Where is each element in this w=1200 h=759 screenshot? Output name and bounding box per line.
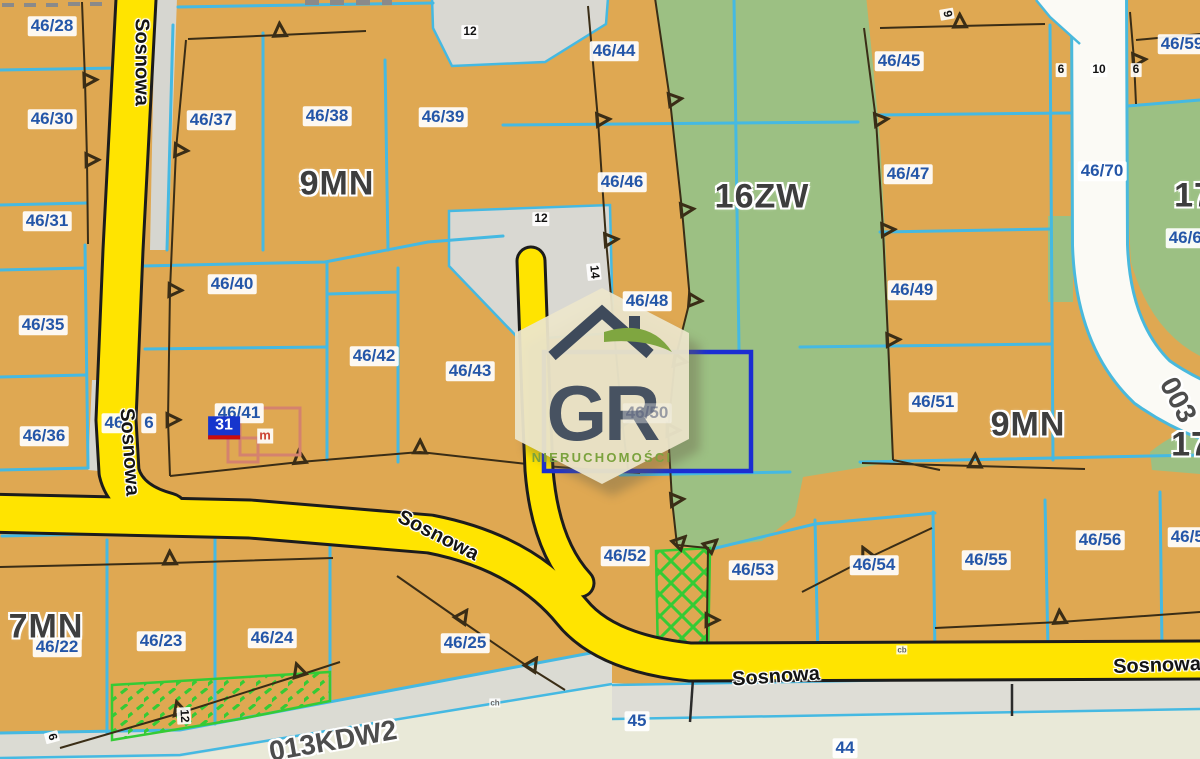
watermark-letters: GR [547, 369, 660, 457]
zone-16zw-area [655, 0, 894, 548]
map-canvas: GR NIERUCHOMOŚCI [0, 0, 1200, 759]
map-viewport[interactable]: GR NIERUCHOMOŚCI 46/2846/3046/3146/3546/… [0, 0, 1200, 759]
watermark-subtitle: NIERUCHOMOŚCI [532, 450, 673, 465]
